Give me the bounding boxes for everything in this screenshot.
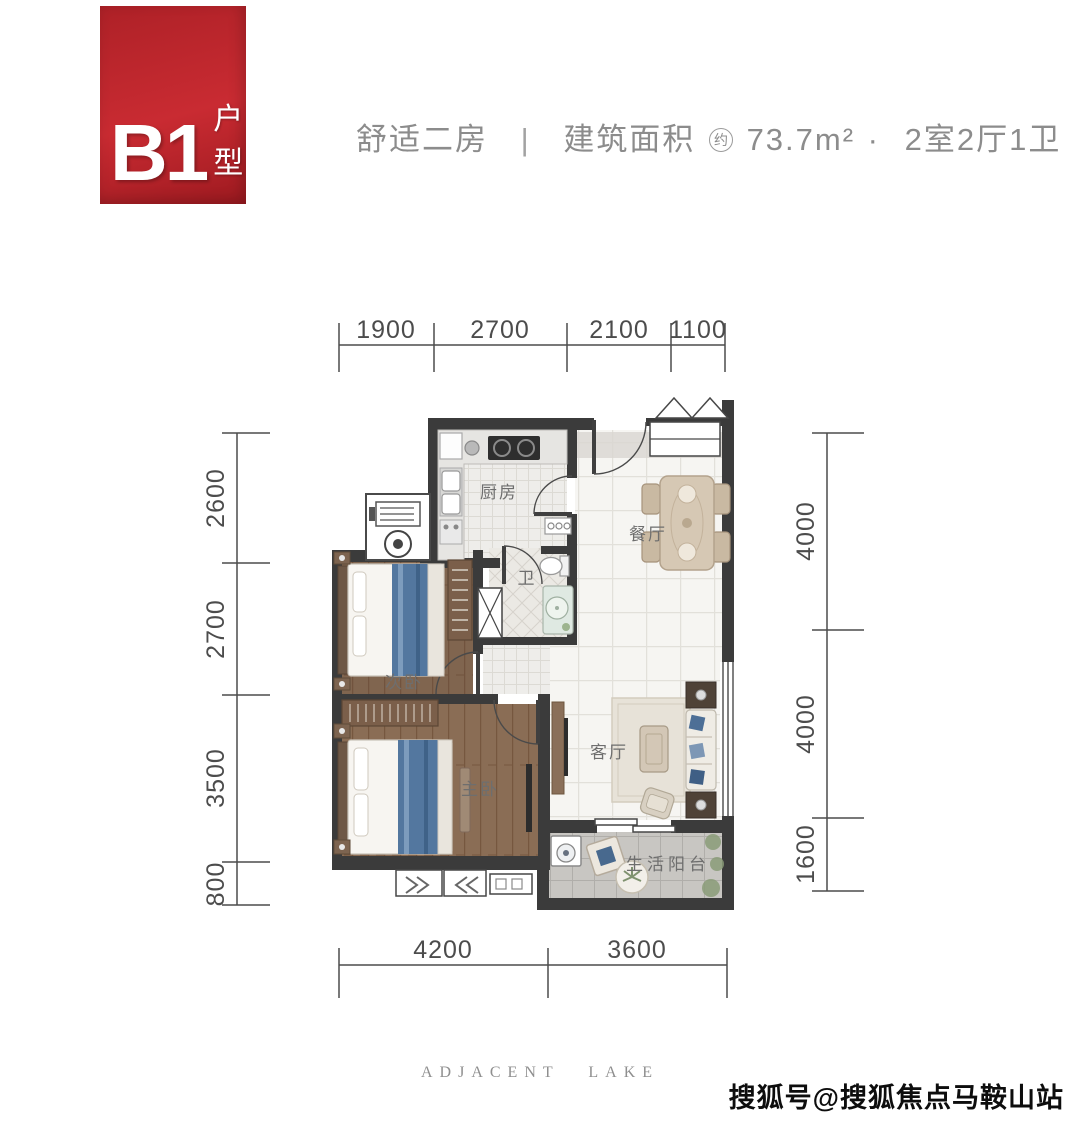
wall-balcony-top-a [545, 820, 597, 833]
water-heater-icon [545, 518, 571, 534]
master-lamp-1 [339, 728, 345, 734]
wall-balcony-top-b [671, 820, 722, 833]
room-label-bathroom: 卫 [518, 569, 537, 588]
wall-kitchen-right-a [567, 418, 577, 478]
side-lamp-2 [696, 800, 706, 810]
sofa-pillow-3 [689, 769, 705, 785]
washing-machine-drum [393, 539, 403, 549]
coffee-table [640, 726, 668, 772]
room-label-balcony: 生活阳台 [626, 855, 710, 874]
dim-right-2: 4000 [792, 694, 820, 754]
side-lamp-1 [696, 690, 706, 700]
room-label-master: 主卧 [461, 780, 499, 799]
casement-triangle-1 [656, 398, 692, 418]
ac-unit-tab [369, 507, 375, 521]
bedroom2-headboard [338, 566, 348, 674]
dim-left-4: 800 [202, 862, 230, 907]
dining-centerpiece [682, 518, 692, 528]
dim-left-1: 2600 [202, 468, 230, 528]
dimension-bottom: 4200 3600 [339, 936, 727, 998]
bedroom2-lamp-1 [339, 555, 345, 561]
toilet-icon [540, 558, 562, 575]
dim-left-2: 2700 [202, 599, 230, 659]
fridge-icon [440, 433, 462, 459]
bedroom2-lamp-2 [339, 681, 345, 687]
master-bench [460, 768, 470, 832]
master-tv [526, 764, 532, 832]
bedroom2-foot-runner [428, 564, 444, 676]
dining-chair-1 [642, 484, 660, 514]
sink-basin-1 [442, 471, 460, 491]
balcony-sliding-panel-2 [633, 826, 675, 832]
hall-floor [483, 645, 550, 694]
balcony-greenery-1 [705, 834, 721, 850]
room-label-bedroom2: 次卧 [385, 673, 423, 692]
bedroom2-pillow-1 [353, 572, 366, 612]
bath-plant [562, 623, 570, 631]
dim-right-1: 4000 [792, 501, 820, 561]
room-label-dining: 餐厅 [629, 525, 667, 544]
balcony-greenery-2 [710, 857, 724, 871]
bedroom2-blanket-stripe-2 [416, 564, 420, 676]
bedroom2-pillow-2 [353, 616, 366, 656]
master-blanket-stripe-1 [404, 740, 409, 854]
appliance-knob-2 [454, 525, 459, 530]
dim-top-2: 2700 [470, 316, 530, 344]
dim-left-3: 3500 [202, 748, 230, 808]
sofa-pillow-2 [689, 743, 705, 759]
balcony-washer-dot [563, 850, 569, 856]
dim-bottom-1: 4200 [413, 936, 473, 964]
dim-top-1: 1900 [356, 316, 416, 344]
sohu-watermark: 搜狐号@搜狐焦点马鞍山站 [729, 1076, 1064, 1115]
balcony-greenery-3 [702, 879, 720, 897]
kitchen-appliance [440, 520, 462, 544]
room-label-kitchen: 厨房 [480, 483, 518, 502]
sofa-pillow-1 [689, 715, 706, 732]
sink-basin-2 [442, 494, 460, 514]
appliance-knob-1 [444, 525, 449, 530]
living-tv [564, 718, 568, 776]
dim-bottom-2: 3600 [607, 936, 667, 964]
master-pillow-1 [354, 748, 368, 790]
shower-drain [555, 606, 559, 610]
bedroom2-blanket-stripe-1 [398, 564, 403, 676]
bedroom2-blanket [392, 564, 428, 676]
stove-icon [488, 436, 540, 460]
balcony-sliding-panel-1 [595, 819, 637, 825]
master-pillow-2 [354, 794, 368, 836]
dimension-left: 2600 2700 3500 800 [202, 433, 270, 906]
dining-plate-2 [678, 543, 696, 561]
dim-top-4: 1100 [669, 316, 727, 344]
master-headboard [338, 742, 348, 852]
dim-right-3: 1600 [792, 824, 820, 884]
dim-top-3: 2100 [589, 316, 649, 344]
wall-balcony-bottom [537, 898, 732, 910]
room-label-living: 客厅 [590, 743, 628, 762]
utility-platform [366, 494, 430, 560]
dining-plate-1 [678, 485, 696, 503]
wall-master-bottom [332, 856, 550, 870]
master-lamp-2 [339, 844, 345, 850]
pot-icon [465, 441, 479, 455]
dimension-right: 4000 4000 1600 [792, 433, 864, 891]
master-blanket-stripe-2 [424, 740, 428, 854]
dimension-top: 1900 2700 2100 1100 [339, 316, 727, 372]
living-window-box [720, 662, 734, 816]
floor-plan-page: B1 户型 舒适二房 | 建筑面积 约 73.7m² · 2室2厅1卫 [0, 0, 1080, 1121]
master-foot-runner [438, 740, 452, 854]
tv-cabinet [552, 702, 564, 794]
floor-plan-svg: 厨房 卫 餐厅 次卧 主卧 客厅 生活阳台 1900 2700 2100 110… [0, 0, 1080, 1121]
